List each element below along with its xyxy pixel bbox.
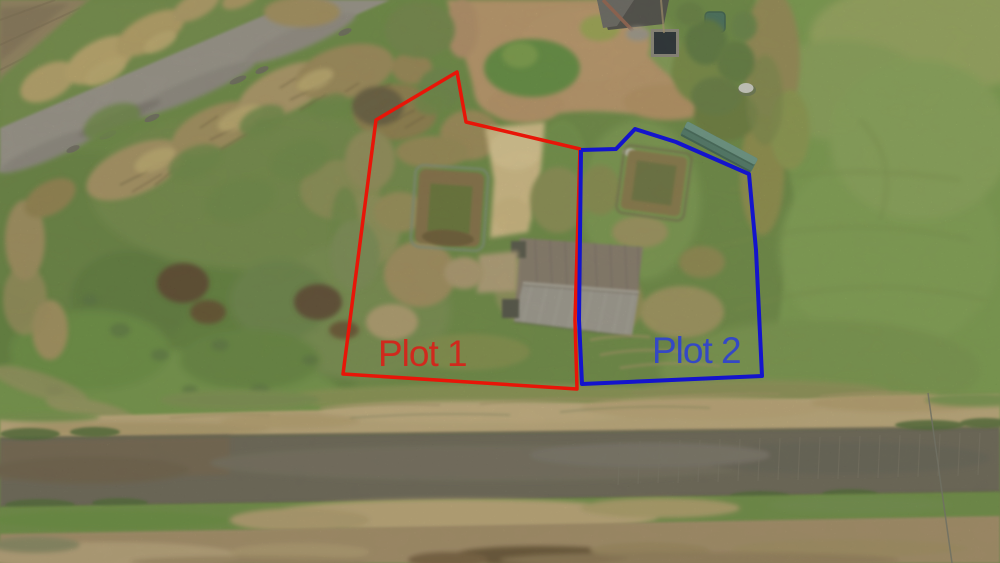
svg-text:Plot 2: Plot 2 (652, 330, 741, 371)
svg-text:Plot 1: Plot 1 (378, 333, 467, 374)
